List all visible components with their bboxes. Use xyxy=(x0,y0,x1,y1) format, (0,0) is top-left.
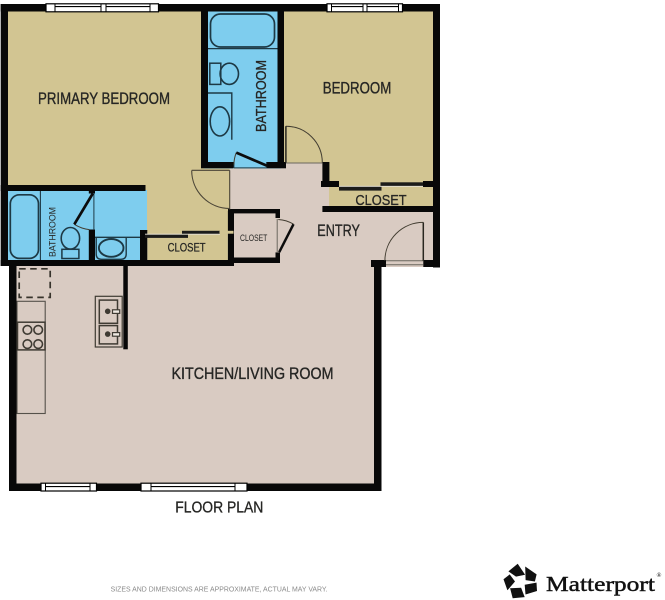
svg-text:SIZES AND DIMENSIONS ARE APPRO: SIZES AND DIMENSIONS ARE APPROXIMATE, AC… xyxy=(111,587,328,594)
svg-text:CLOSET: CLOSET xyxy=(240,233,268,243)
svg-text:Matterport: Matterport xyxy=(546,572,655,596)
svg-text:®: ® xyxy=(657,572,662,579)
svg-text:CLOSET: CLOSET xyxy=(355,192,406,209)
svg-text:FLOOR PLAN: FLOOR PLAN xyxy=(175,499,263,516)
svg-text:CLOSET: CLOSET xyxy=(168,240,206,254)
svg-text:BATHROOM: BATHROOM xyxy=(47,207,57,257)
svg-text:PRIMARY BEDROOM: PRIMARY BEDROOM xyxy=(38,90,170,108)
svg-text:BATHROOM: BATHROOM xyxy=(254,60,270,132)
svg-text:ENTRY: ENTRY xyxy=(317,222,360,240)
svg-text:BEDROOM: BEDROOM xyxy=(323,80,392,98)
svg-text:KITCHEN/LIVING ROOM: KITCHEN/LIVING ROOM xyxy=(172,365,334,383)
